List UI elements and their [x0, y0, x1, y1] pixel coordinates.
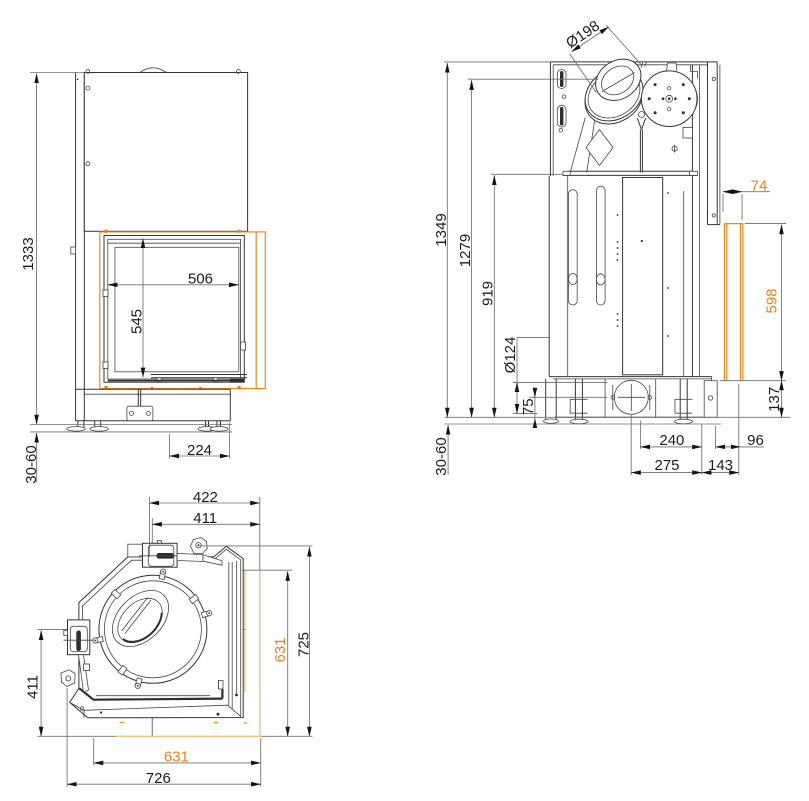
svg-text:725: 725	[296, 632, 313, 657]
svg-text:545: 545	[129, 309, 146, 334]
svg-text:598: 598	[764, 288, 781, 313]
svg-text:224: 224	[187, 442, 212, 459]
svg-text:30-60: 30-60	[23, 445, 40, 483]
svg-text:506: 506	[188, 271, 213, 288]
svg-text:30-60: 30-60	[433, 437, 450, 475]
svg-text:631: 631	[164, 749, 189, 766]
svg-text:75: 75	[520, 398, 537, 415]
svg-text:1279: 1279	[457, 234, 474, 267]
svg-text:411: 411	[193, 510, 217, 527]
svg-text:1333: 1333	[20, 237, 37, 270]
svg-text:Ø124: Ø124	[502, 337, 519, 374]
svg-text:275: 275	[654, 457, 679, 474]
svg-text:919: 919	[480, 281, 497, 306]
svg-text:240: 240	[659, 432, 684, 449]
svg-text:726: 726	[146, 770, 171, 787]
svg-text:Ø198: Ø198	[563, 17, 603, 52]
svg-text:74: 74	[751, 178, 768, 195]
svg-text:137: 137	[766, 387, 783, 412]
svg-text:422: 422	[193, 489, 218, 506]
svg-text:411: 411	[25, 675, 42, 699]
svg-text:96: 96	[747, 432, 764, 449]
svg-text:1349: 1349	[433, 213, 450, 246]
svg-text:631: 631	[272, 637, 289, 662]
svg-text:143: 143	[708, 457, 733, 474]
